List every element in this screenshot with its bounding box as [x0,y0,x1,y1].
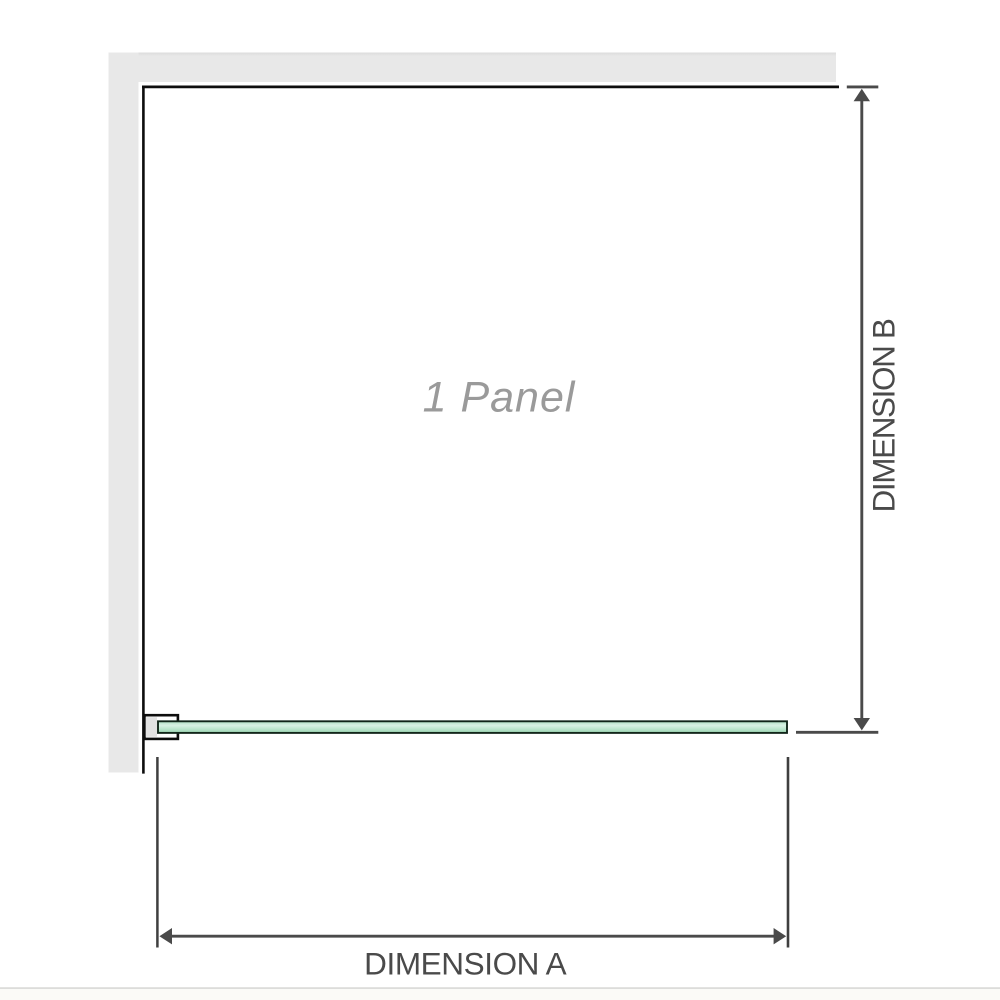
svg-text:DIMENSION A: DIMENSION A [364,946,567,982]
svg-text:1 Panel: 1 Panel [423,374,576,422]
svg-text:DIMENSION B: DIMENSION B [866,319,902,512]
